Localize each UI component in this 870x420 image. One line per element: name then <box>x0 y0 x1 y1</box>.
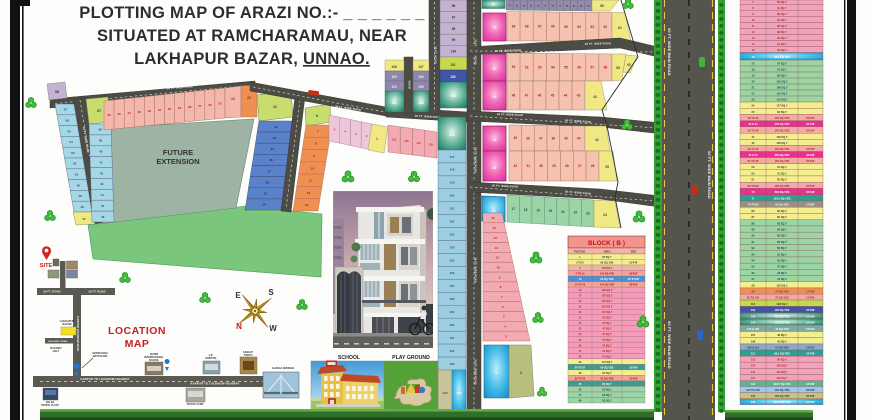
svg-text:100 SQ.YDS: 100 SQ.YDS <box>775 159 790 163</box>
svg-text:86: 86 <box>600 4 604 8</box>
svg-text:BATTALION: BATTALION <box>93 354 108 358</box>
svg-text:45: 45 <box>101 204 105 208</box>
svg-text:52 SQ.Y: 52 SQ.Y <box>777 252 787 256</box>
svg-text:103: 103 <box>450 94 456 98</box>
svg-text:65: 65 <box>564 25 568 29</box>
svg-text:25'X45': 25'X45' <box>806 116 815 120</box>
svg-text:53: 53 <box>71 151 75 155</box>
svg-text:58 SQ.Y: 58 SQ.Y <box>777 234 787 238</box>
svg-text:41'X45': 41'X45' <box>806 382 815 386</box>
svg-text:30 FT. WIDE ROAD: 30 FT. WIDE ROAD <box>474 257 477 282</box>
svg-text:HOSPITAL: HOSPITAL <box>205 357 217 360</box>
svg-text:83 SQ.Y: 83 SQ.Y <box>777 221 787 225</box>
svg-text:KANPUR LUCKNOW ROAD: KANPUR LUCKNOW ROAD <box>76 317 79 352</box>
svg-text:48: 48 <box>512 94 516 98</box>
svg-text:50: 50 <box>77 183 81 187</box>
svg-text:92 SQ.Y: 92 SQ.Y <box>777 110 787 114</box>
svg-text:39: 39 <box>99 139 103 143</box>
svg-text:47 SQ.Y: 47 SQ.Y <box>602 322 612 325</box>
svg-text:25'X45': 25'X45' <box>806 147 815 151</box>
svg-text:15'X21': 15'X21' <box>806 346 815 350</box>
svg-text:20: 20 <box>273 136 277 140</box>
svg-text:66: 66 <box>551 25 555 29</box>
svg-text:41: 41 <box>100 160 104 164</box>
svg-text:70: 70 <box>493 26 497 30</box>
svg-text:14: 14 <box>492 226 496 230</box>
svg-text:26: 26 <box>591 164 595 168</box>
svg-text:19: 19 <box>271 147 275 151</box>
svg-text:100 SQ.YDS: 100 SQ.YDS <box>775 116 790 120</box>
svg-text:MAP: MAP <box>125 338 150 350</box>
svg-text:W: W <box>269 324 277 333</box>
svg-text:100 SQ.YDS: 100 SQ.YDS <box>775 394 790 398</box>
svg-text:56: 56 <box>577 66 581 70</box>
svg-text:15'X36': 15'X36' <box>806 296 815 300</box>
svg-text:55: 55 <box>564 66 568 70</box>
svg-text:200 SQ.YDS: 200 SQ.YDS <box>775 190 790 194</box>
svg-text:203.5 SQ.YDS: 203.5 SQ.YDS <box>773 382 790 386</box>
svg-text:86 SQ.Y: 86 SQ.Y <box>777 358 787 362</box>
svg-text:83 SQ.YDS: 83 SQ.YDS <box>601 278 614 281</box>
svg-text:124: 124 <box>450 245 455 249</box>
svg-text:PETROL PUMP: PETROL PUMP <box>187 404 204 406</box>
svg-text:PLOT NO.: PLOT NO. <box>574 251 586 254</box>
svg-text:117 TO 133: 117 TO 133 <box>746 388 760 392</box>
svg-text:HALT: HALT <box>53 349 60 353</box>
svg-text:130: 130 <box>450 323 455 327</box>
svg-text:35 TO 40: 35 TO 40 <box>748 129 759 133</box>
svg-text:34: 34 <box>493 138 497 142</box>
svg-text:PETROL PLANT: PETROL PLANT <box>41 404 59 407</box>
svg-text:47 SQ.Y: 47 SQ.Y <box>602 339 612 342</box>
svg-text:116: 116 <box>751 382 756 386</box>
svg-text:SOLAR: SOLAR <box>46 401 54 404</box>
svg-text:38: 38 <box>552 137 556 141</box>
svg-text:25'X45': 25'X45' <box>806 321 815 325</box>
svg-text:47 SQ.Y: 47 SQ.Y <box>602 333 612 336</box>
svg-text:30 TO 37: 30 TO 37 <box>575 366 586 369</box>
svg-text:43 SQ.Y: 43 SQ.Y <box>777 339 787 343</box>
svg-text:91 SQ.Y: 91 SQ.Y <box>777 165 787 169</box>
svg-text:36: 36 <box>526 136 530 140</box>
svg-text:25'X45': 25'X45' <box>806 159 815 163</box>
svg-text:105 & 106: 105 & 106 <box>747 327 760 331</box>
svg-text:RAILWAY ROAD: RAILWAY ROAD <box>48 340 67 343</box>
svg-text:48 SQ.Y: 48 SQ.Y <box>777 48 787 52</box>
svg-text:SCHOOL: SCHOOL <box>338 355 361 361</box>
svg-text:30 FT. ROAD: 30 FT. ROAD <box>88 291 105 294</box>
svg-text:25'X36': 25'X36' <box>806 308 815 312</box>
svg-text:50: 50 <box>493 67 497 71</box>
svg-text:52: 52 <box>73 162 77 166</box>
svg-text:32: 32 <box>514 164 518 168</box>
svg-text:LAKHAPUR BAZAR, UNNAO.: LAKHAPUR BAZAR, UNNAO. <box>134 50 370 68</box>
svg-text:BLOCK ( B ): BLOCK ( B ) <box>588 240 625 247</box>
svg-text:16: 16 <box>492 209 496 213</box>
svg-text:17: 17 <box>511 207 515 211</box>
svg-text:95 SQ.YDS: 95 SQ.YDS <box>601 366 614 369</box>
svg-text:51: 51 <box>512 65 516 69</box>
svg-text:112: 112 <box>751 358 756 362</box>
svg-text:86 SQ.Y: 86 SQ.Y <box>777 0 787 4</box>
svg-text:55: 55 <box>67 129 71 133</box>
svg-text:60 FT. WIDE MAIN ROAD: 60 FT. WIDE MAIN ROAD <box>667 321 671 369</box>
svg-text:1: 1 <box>376 137 378 141</box>
svg-text:15: 15 <box>491 216 495 220</box>
svg-text:95 SQ.Y: 95 SQ.Y <box>602 372 612 375</box>
svg-text:123.5 SQ.YDS: 123.5 SQ.YDS <box>773 196 790 200</box>
svg-text:102 SQ.Y: 102 SQ.Y <box>602 289 613 292</box>
svg-text:134: 134 <box>442 391 447 395</box>
svg-text:98 SQ.Y: 98 SQ.Y <box>777 24 787 28</box>
svg-text:39 TO 44: 39 TO 44 <box>575 377 586 380</box>
svg-text:29: 29 <box>178 106 182 110</box>
svg-text:BAZAR: BAZAR <box>62 322 71 326</box>
svg-text:108: 108 <box>391 65 397 69</box>
svg-text:42: 42 <box>593 95 597 99</box>
svg-text:41 SQ.Y: 41 SQ.Y <box>777 277 787 281</box>
svg-text:11: 11 <box>309 179 313 183</box>
svg-text:28: 28 <box>565 164 569 168</box>
svg-text:14: 14 <box>262 203 266 207</box>
svg-text:70 SQ.YDS: 70 SQ.YDS <box>775 296 789 300</box>
svg-text:15'X45': 15'X45' <box>629 377 638 380</box>
svg-text:89 SQ.Y: 89 SQ.Y <box>777 12 787 16</box>
svg-text:112: 112 <box>392 138 397 142</box>
svg-text:101 SQ.Y: 101 SQ.Y <box>776 80 788 84</box>
svg-text:100 SQ.YDS: 100 SQ.YDS <box>775 388 790 392</box>
svg-text:125: 125 <box>450 258 455 262</box>
svg-text:45'X40': 45'X40' <box>806 153 815 157</box>
svg-text:107 SQ.Y: 107 SQ.Y <box>602 300 613 303</box>
svg-text:107: 107 <box>418 65 424 69</box>
svg-text:58: 58 <box>604 66 608 70</box>
svg-text:111: 111 <box>751 352 756 356</box>
svg-text:47: 47 <box>82 217 86 221</box>
svg-text:36: 36 <box>107 113 111 117</box>
svg-text:22: 22 <box>574 211 578 215</box>
svg-text:105: 105 <box>418 85 424 89</box>
svg-text:56 SQ.Y: 56 SQ.Y <box>777 246 787 250</box>
svg-text:54: 54 <box>69 140 73 144</box>
svg-text:23: 23 <box>586 211 590 215</box>
svg-text:121: 121 <box>450 207 455 211</box>
svg-text:38: 38 <box>99 128 103 132</box>
svg-text:72 TO 85: 72 TO 85 <box>748 203 759 207</box>
svg-text:106: 106 <box>418 75 424 79</box>
svg-text:87 SQ.Y: 87 SQ.Y <box>777 62 787 66</box>
svg-text:100 SQ.YDS: 100 SQ.YDS <box>775 184 790 188</box>
svg-text:97: 97 <box>452 15 456 19</box>
svg-text:23: 23 <box>247 96 251 100</box>
svg-text:18: 18 <box>269 158 273 162</box>
svg-text:127: 127 <box>450 284 455 288</box>
svg-text:91 SQ.Y: 91 SQ.Y <box>777 68 787 72</box>
svg-text:26: 26 <box>208 103 212 107</box>
svg-text:2 TO 5: 2 TO 5 <box>576 262 584 265</box>
svg-text:12: 12 <box>307 191 311 195</box>
svg-text:N: N <box>236 322 242 331</box>
svg-text:12: 12 <box>495 246 499 250</box>
svg-text:107 SQ.Y: 107 SQ.Y <box>602 295 613 298</box>
svg-text:144 SQ.YDS: 144 SQ.YDS <box>600 273 615 276</box>
svg-text:177 SQ.Y: 177 SQ.Y <box>776 104 788 108</box>
svg-text:53: 53 <box>538 65 542 69</box>
svg-text:13: 13 <box>305 203 309 207</box>
svg-text:30 FT. ROAD: 30 FT. ROAD <box>434 46 438 64</box>
svg-text:SITUATED AT RAMCHARAMAU, NEAR: SITUATED AT RAMCHARAMAU, NEAR <box>97 27 407 45</box>
svg-text:81 SQ.Y: 81 SQ.Y <box>777 6 787 10</box>
svg-text:28'X45': 28'X45' <box>629 273 638 276</box>
svg-text:28: 28 <box>188 105 192 109</box>
svg-text:121 SQ.Y: 121 SQ.Y <box>776 376 788 380</box>
svg-text:96: 96 <box>452 4 456 8</box>
svg-text:98 SQ.Y: 98 SQ.Y <box>777 74 787 78</box>
svg-text:15'.9"X45': 15'.9"X45' <box>628 278 640 281</box>
svg-text:114: 114 <box>416 141 421 145</box>
svg-text:126: 126 <box>450 271 455 275</box>
svg-text:46: 46 <box>538 94 542 98</box>
svg-text:KANPUR TO LUCKNOW HIGHWAY: KANPUR TO LUCKNOW HIGHWAY <box>190 382 239 386</box>
svg-text:KANPUR TO LUCKNOW HIGHWAY: KANPUR TO LUCKNOW HIGHWAY <box>80 377 129 381</box>
svg-text:62 TO 69: 62 TO 69 <box>748 184 759 188</box>
svg-text:102 SQ.Y: 102 SQ.Y <box>776 302 788 306</box>
svg-text:106 SQ.Y: 106 SQ.Y <box>776 86 788 90</box>
svg-text:28'X45': 28'X45' <box>629 284 638 287</box>
svg-text:18: 18 <box>524 208 528 212</box>
svg-text:83 SQ.Y: 83 SQ.Y <box>602 400 612 403</box>
svg-text:61 SQ.Y: 61 SQ.Y <box>602 317 612 320</box>
svg-text:25'X45': 25'X45' <box>806 400 815 404</box>
svg-text:32: 32 <box>148 109 152 113</box>
svg-text:80 SQ.YDS: 80 SQ.YDS <box>601 262 614 265</box>
svg-text:31: 31 <box>527 164 531 168</box>
svg-text:60: 60 <box>627 63 631 67</box>
svg-text:47 SQ.Y: 47 SQ.Y <box>602 328 612 331</box>
svg-text:AREA: AREA <box>604 251 611 254</box>
svg-text:83 SQ.Y: 83 SQ.Y <box>602 388 612 391</box>
svg-text:46: 46 <box>101 215 105 219</box>
svg-text:20: 20 <box>549 209 553 213</box>
svg-text:30 FT. WIDE ROAD: 30 FT. WIDE ROAD <box>585 41 611 46</box>
svg-text:37: 37 <box>97 109 101 113</box>
svg-text:48: 48 <box>80 205 84 209</box>
svg-text:68: 68 <box>525 25 529 29</box>
svg-text:102: 102 <box>450 75 456 79</box>
svg-text:100 SQ.YDS: 100 SQ.YDS <box>775 129 790 133</box>
svg-text:110 SQ.Y: 110 SQ.Y <box>776 92 787 96</box>
svg-text:PLAY GROUND: PLAY GROUND <box>392 355 430 361</box>
svg-text:37: 37 <box>539 136 543 140</box>
svg-text:42: 42 <box>100 171 104 175</box>
svg-text:61: 61 <box>618 26 622 30</box>
svg-text:60 SQ.Y: 60 SQ.Y <box>602 256 612 259</box>
svg-text:43: 43 <box>577 94 581 98</box>
svg-text:58: 58 <box>55 90 59 94</box>
svg-text:95 SQ.YDS: 95 SQ.YDS <box>601 377 614 380</box>
svg-text:27: 27 <box>578 164 582 168</box>
svg-text:107 SQ.Y: 107 SQ.Y <box>602 306 613 309</box>
svg-text:47: 47 <box>525 94 529 98</box>
svg-text:111: 111 <box>391 101 396 105</box>
svg-text:102 SQ.Y: 102 SQ.Y <box>776 283 788 287</box>
svg-text:110 SQ.Y: 110 SQ.Y <box>776 98 787 102</box>
svg-text:27: 27 <box>198 104 202 108</box>
svg-text:107: 107 <box>751 333 756 337</box>
svg-text:39: 39 <box>564 137 568 141</box>
svg-text:49: 49 <box>79 194 83 198</box>
svg-text:69: 69 <box>512 25 516 29</box>
svg-text:200 SQ.YDS: 200 SQ.YDS <box>775 314 790 318</box>
svg-text:63: 63 <box>591 25 595 29</box>
svg-text:PLOTTING MAP OF ARAZI NO.:- _: PLOTTING MAP OF ARAZI NO.:- _ _ _ _ _ _ <box>79 4 425 22</box>
svg-text:71: 71 <box>491 3 495 7</box>
svg-text:30 FT. ROAD: 30 FT. ROAD <box>43 291 60 294</box>
svg-text:40: 40 <box>99 150 103 154</box>
svg-text:60 FT. WIDE MAIN ROAD: 60 FT. WIDE MAIN ROAD <box>707 151 711 199</box>
svg-text:48 SQ.Y: 48 SQ.Y <box>777 333 787 337</box>
svg-text:61 SQ.Y: 61 SQ.Y <box>602 350 612 353</box>
svg-text:50 SQ.Y: 50 SQ.Y <box>777 259 787 263</box>
svg-text:99: 99 <box>452 38 456 42</box>
svg-text:44: 44 <box>101 193 105 197</box>
svg-text:64: 64 <box>577 25 581 29</box>
svg-text:93 SQ.Y: 93 SQ.Y <box>777 36 787 40</box>
svg-text:133 SQ.Y: 133 SQ.Y <box>776 141 788 145</box>
svg-text:56 SQ.Y: 56 SQ.Y <box>777 178 787 182</box>
svg-text:133: 133 <box>450 362 455 366</box>
svg-text:25: 25 <box>218 102 222 106</box>
svg-text:104: 104 <box>751 321 756 325</box>
svg-text:52: 52 <box>525 65 529 69</box>
svg-text:83 SQ.Y: 83 SQ.Y <box>777 18 787 22</box>
svg-text:17'X36': 17'X36' <box>806 290 815 294</box>
svg-text:26 TO 32: 26 TO 32 <box>748 116 759 120</box>
svg-text:10: 10 <box>497 266 501 270</box>
svg-text:40 SQ.YDS: 40 SQ.YDS <box>775 327 789 331</box>
svg-text:47 SQ.Y: 47 SQ.Y <box>602 344 612 347</box>
svg-text:129: 129 <box>450 310 455 314</box>
svg-text:59: 59 <box>616 66 620 70</box>
svg-text:31: 31 <box>158 108 162 112</box>
svg-text:116: 116 <box>449 133 455 137</box>
svg-text:67: 67 <box>538 25 542 29</box>
svg-text:43 SQ.Y: 43 SQ.Y <box>777 271 787 275</box>
svg-text:200 SQ.YDS: 200 SQ.YDS <box>775 122 790 126</box>
svg-text:51: 51 <box>75 173 79 177</box>
svg-text:14 TO 15: 14 TO 15 <box>575 284 586 287</box>
svg-text:108: 108 <box>751 339 756 343</box>
svg-text:120: 120 <box>450 194 455 198</box>
svg-text:85 SQ.Y: 85 SQ.Y <box>777 215 787 219</box>
svg-text:24: 24 <box>603 213 607 217</box>
svg-text:117: 117 <box>450 155 455 159</box>
svg-text:104: 104 <box>418 101 424 105</box>
svg-text:47 SQ.Y: 47 SQ.Y <box>777 265 787 269</box>
svg-text:122: 122 <box>450 220 455 224</box>
svg-text:16: 16 <box>266 181 270 185</box>
svg-text:GANGA BRIDGE: GANGA BRIDGE <box>272 366 294 370</box>
svg-text:40: 40 <box>577 137 581 141</box>
svg-text:144 SQ.YDS: 144 SQ.YDS <box>600 284 615 287</box>
svg-text:103 SQ.Y: 103 SQ.Y <box>776 364 788 368</box>
svg-text:107 SQ.Y: 107 SQ.Y <box>602 311 613 314</box>
svg-text:98 SQ.Y: 98 SQ.Y <box>777 30 787 34</box>
svg-text:51 TO 58: 51 TO 58 <box>748 159 759 163</box>
svg-text:19: 19 <box>536 209 540 213</box>
svg-text:13: 13 <box>494 236 498 240</box>
svg-text:E: E <box>235 291 241 300</box>
svg-text:61 SQ.YDS: 61 SQ.YDS <box>775 346 789 350</box>
svg-text:134: 134 <box>751 394 756 398</box>
svg-text:15'X45': 15'X45' <box>629 366 638 369</box>
svg-text:41: 41 <box>595 138 599 142</box>
svg-text:22: 22 <box>273 105 277 109</box>
svg-text:45'X40': 45'X40' <box>806 190 815 194</box>
svg-text:10: 10 <box>311 166 315 170</box>
svg-text:49 & 50: 49 & 50 <box>748 153 758 157</box>
svg-text:100: 100 <box>451 50 457 54</box>
svg-text:135: 135 <box>751 400 756 404</box>
svg-text:131: 131 <box>450 336 455 340</box>
svg-text:25'X45': 25'X45' <box>806 184 815 188</box>
svg-text:102 SQ.Y: 102 SQ.Y <box>776 135 788 139</box>
svg-text:41 SQ.Y: 41 SQ.Y <box>777 171 787 175</box>
svg-text:60 SQ.YDS: 60 SQ.YDS <box>775 203 789 207</box>
svg-text:103: 103 <box>751 314 756 318</box>
svg-text:25: 25 <box>605 165 609 169</box>
svg-text:101: 101 <box>450 63 456 67</box>
svg-text:83 SQ.Y: 83 SQ.Y <box>602 394 612 397</box>
svg-text:ROAD: ROAD <box>408 81 412 89</box>
svg-text:FUTURE: FUTURE <box>163 148 193 157</box>
svg-text:132: 132 <box>450 349 455 353</box>
svg-text:33: 33 <box>493 166 497 170</box>
svg-text:101: 101 <box>751 302 756 306</box>
svg-text:35: 35 <box>117 112 121 116</box>
svg-text:24: 24 <box>231 97 235 101</box>
svg-text:100 SQ.YDS: 100 SQ.YDS <box>775 321 790 325</box>
svg-text:30: 30 <box>168 107 172 111</box>
svg-text:25'X45': 25'X45' <box>806 314 815 318</box>
svg-text:56: 56 <box>66 119 70 123</box>
svg-text:174 SQ.Y: 174 SQ.Y <box>602 361 613 364</box>
svg-text:91 SQ.Y: 91 SQ.Y <box>777 42 787 46</box>
svg-text:SCHOOL: SCHOOL <box>149 359 160 362</box>
svg-text:7 TO 12: 7 TO 12 <box>576 273 586 276</box>
svg-text:45: 45 <box>551 94 555 98</box>
svg-text:60 FT. WIDE MAIN ROAD: 60 FT. WIDE MAIN ROAD <box>667 28 671 76</box>
svg-text:2: 2 <box>520 371 522 375</box>
svg-text:15'X45': 15'X45' <box>629 262 638 265</box>
svg-text:15: 15 <box>264 192 268 196</box>
svg-text:146 SQ.Y: 146 SQ.Y <box>602 267 613 270</box>
svg-text:TIRATH: TIRATH <box>244 354 253 357</box>
svg-text:115: 115 <box>751 376 756 380</box>
svg-text:30 FT. WIDE ROAD: 30 FT. WIDE ROAD <box>474 359 477 384</box>
svg-text:43: 43 <box>100 182 104 186</box>
svg-text:SITE: SITE <box>40 263 53 269</box>
svg-text:54: 54 <box>551 65 555 69</box>
svg-text:30 FT. WIDE ROAD: 30 FT. WIDE ROAD <box>474 147 477 172</box>
svg-text:113: 113 <box>404 139 409 143</box>
svg-text:100 SQ.YDS: 100 SQ.YDS <box>775 147 790 151</box>
svg-text:109: 109 <box>391 75 397 79</box>
svg-text:45'X40': 45'X40' <box>806 122 815 126</box>
svg-text:112 SQ.Y: 112 SQ.Y <box>776 370 787 374</box>
svg-text:30: 30 <box>539 164 543 168</box>
svg-text:95 SQ.Y: 95 SQ.Y <box>602 383 612 386</box>
